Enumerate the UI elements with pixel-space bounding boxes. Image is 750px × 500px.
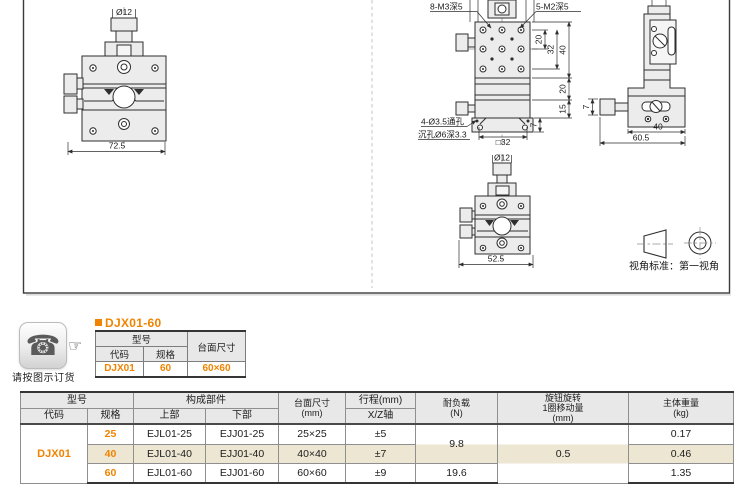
- weight-60: 1.35: [629, 463, 734, 483]
- dim-40-plate: 40: [558, 45, 568, 55]
- header-travel: 行程(mm): [346, 392, 416, 408]
- note-counterbore: 沉孔Ø6深3.3: [418, 130, 467, 140]
- code-value: DJX01: [21, 424, 88, 483]
- lower-40: EJJ01-40: [206, 444, 279, 463]
- dim-72-5: 72.5: [109, 141, 126, 151]
- dim-20-mid: 20: [558, 84, 568, 94]
- upper-60: EJL01-60: [134, 463, 206, 483]
- surface-40: 40×40: [279, 444, 346, 463]
- lower-25: EJJ01-25: [206, 424, 279, 444]
- phone-icon: ☎: [26, 332, 61, 360]
- mini-header-surface: 台面尺寸: [188, 331, 246, 362]
- header-upper: 上部: [134, 408, 206, 424]
- spec-60: 60: [88, 463, 134, 483]
- header-weight: 主体重量 (kg): [629, 392, 734, 424]
- upper-40: EJL01-40: [134, 444, 206, 463]
- weight-40: 0.46: [629, 444, 734, 463]
- upper-25: EJL01-25: [134, 424, 206, 444]
- dim-32-holes: 32: [546, 45, 556, 55]
- load-60: 19.6: [416, 463, 498, 483]
- dim-60-5: 60.5: [633, 133, 650, 143]
- order-caption: 请按图示订货: [12, 369, 75, 384]
- mini-table-row: DJX01 60 60×60: [96, 362, 246, 377]
- specification-table: 型号 构成部件 台面尺寸 (mm) 行程(mm) 耐负载 (N) 旋钮旋转 1圈…: [20, 391, 734, 484]
- drawing-panel: Ø12 72.5: [0, 0, 750, 300]
- projection-standard-label: 视角标准：第一视角: [629, 260, 719, 273]
- mini-spec-value: 60: [144, 362, 188, 377]
- header-spec: 规格: [88, 408, 134, 424]
- note-through-hole: 4-Ø3.5通孔: [421, 117, 464, 127]
- header-lower: 下部: [206, 408, 279, 424]
- orange-bullet-icon: [95, 319, 102, 326]
- travel-25: ±5: [346, 424, 416, 444]
- surface-25: 25×25: [279, 424, 346, 444]
- header-axis: X/Z轴: [346, 408, 416, 424]
- dim-20-holes: 20: [534, 35, 544, 45]
- mini-header-spec: 规格: [144, 347, 188, 362]
- phone-order-icon-box: ☎: [19, 322, 67, 369]
- mini-surface-value: 60×60: [188, 362, 246, 377]
- spec-25: 25: [88, 424, 134, 444]
- part-number-text: DJX01-60: [105, 316, 161, 330]
- mini-code-value: DJX01: [96, 362, 144, 377]
- dim-7-base: 7: [529, 122, 539, 127]
- header-components: 构成部件: [134, 392, 279, 408]
- lower-60: EJJ01-60: [206, 463, 279, 483]
- travel-40: ±7: [346, 444, 416, 463]
- header-knob-travel: 旋钮旋转 1圈移动量 (mm): [498, 392, 629, 424]
- dim-sq32: □32: [496, 137, 511, 147]
- pointing-hand-icon: ☞: [68, 336, 82, 356]
- dim-15-lower: 15: [558, 104, 568, 114]
- dim-7-side: 7: [581, 104, 591, 109]
- header-code: 代码: [21, 408, 88, 424]
- surface-60: 60×60: [279, 463, 346, 483]
- dim-dia12-front-large: Ø12: [116, 7, 132, 17]
- dim-40-side: 40: [653, 122, 663, 132]
- order-example-table: 型号 台面尺寸 代码 规格 DJX01 60 60×60: [95, 330, 246, 378]
- label-8-m3: 8-M3深5: [430, 2, 463, 12]
- knob-move-value: 0.5: [498, 424, 629, 483]
- table-row-25: DJX01 25 EJL01-25 EJJ01-25 25×25 ±5 9.8 …: [21, 424, 734, 444]
- spec-40: 40: [88, 444, 134, 463]
- dim-dia12-front-small: Ø12: [494, 153, 510, 163]
- label-5-m2: 5-M2深5: [536, 2, 569, 12]
- weight-25: 0.17: [629, 424, 734, 444]
- header-load: 耐负载 (N): [416, 392, 498, 424]
- dim-52-5: 52.5: [488, 254, 505, 264]
- part-number-title: DJX01-60: [95, 316, 161, 329]
- mini-header-code: 代码: [96, 347, 144, 362]
- mini-header-model: 型号: [96, 331, 188, 347]
- travel-60: ±9: [346, 463, 416, 483]
- header-model: 型号: [21, 392, 134, 408]
- header-surface: 台面尺寸 (mm): [279, 392, 346, 424]
- load-25-40: 9.8: [416, 424, 498, 463]
